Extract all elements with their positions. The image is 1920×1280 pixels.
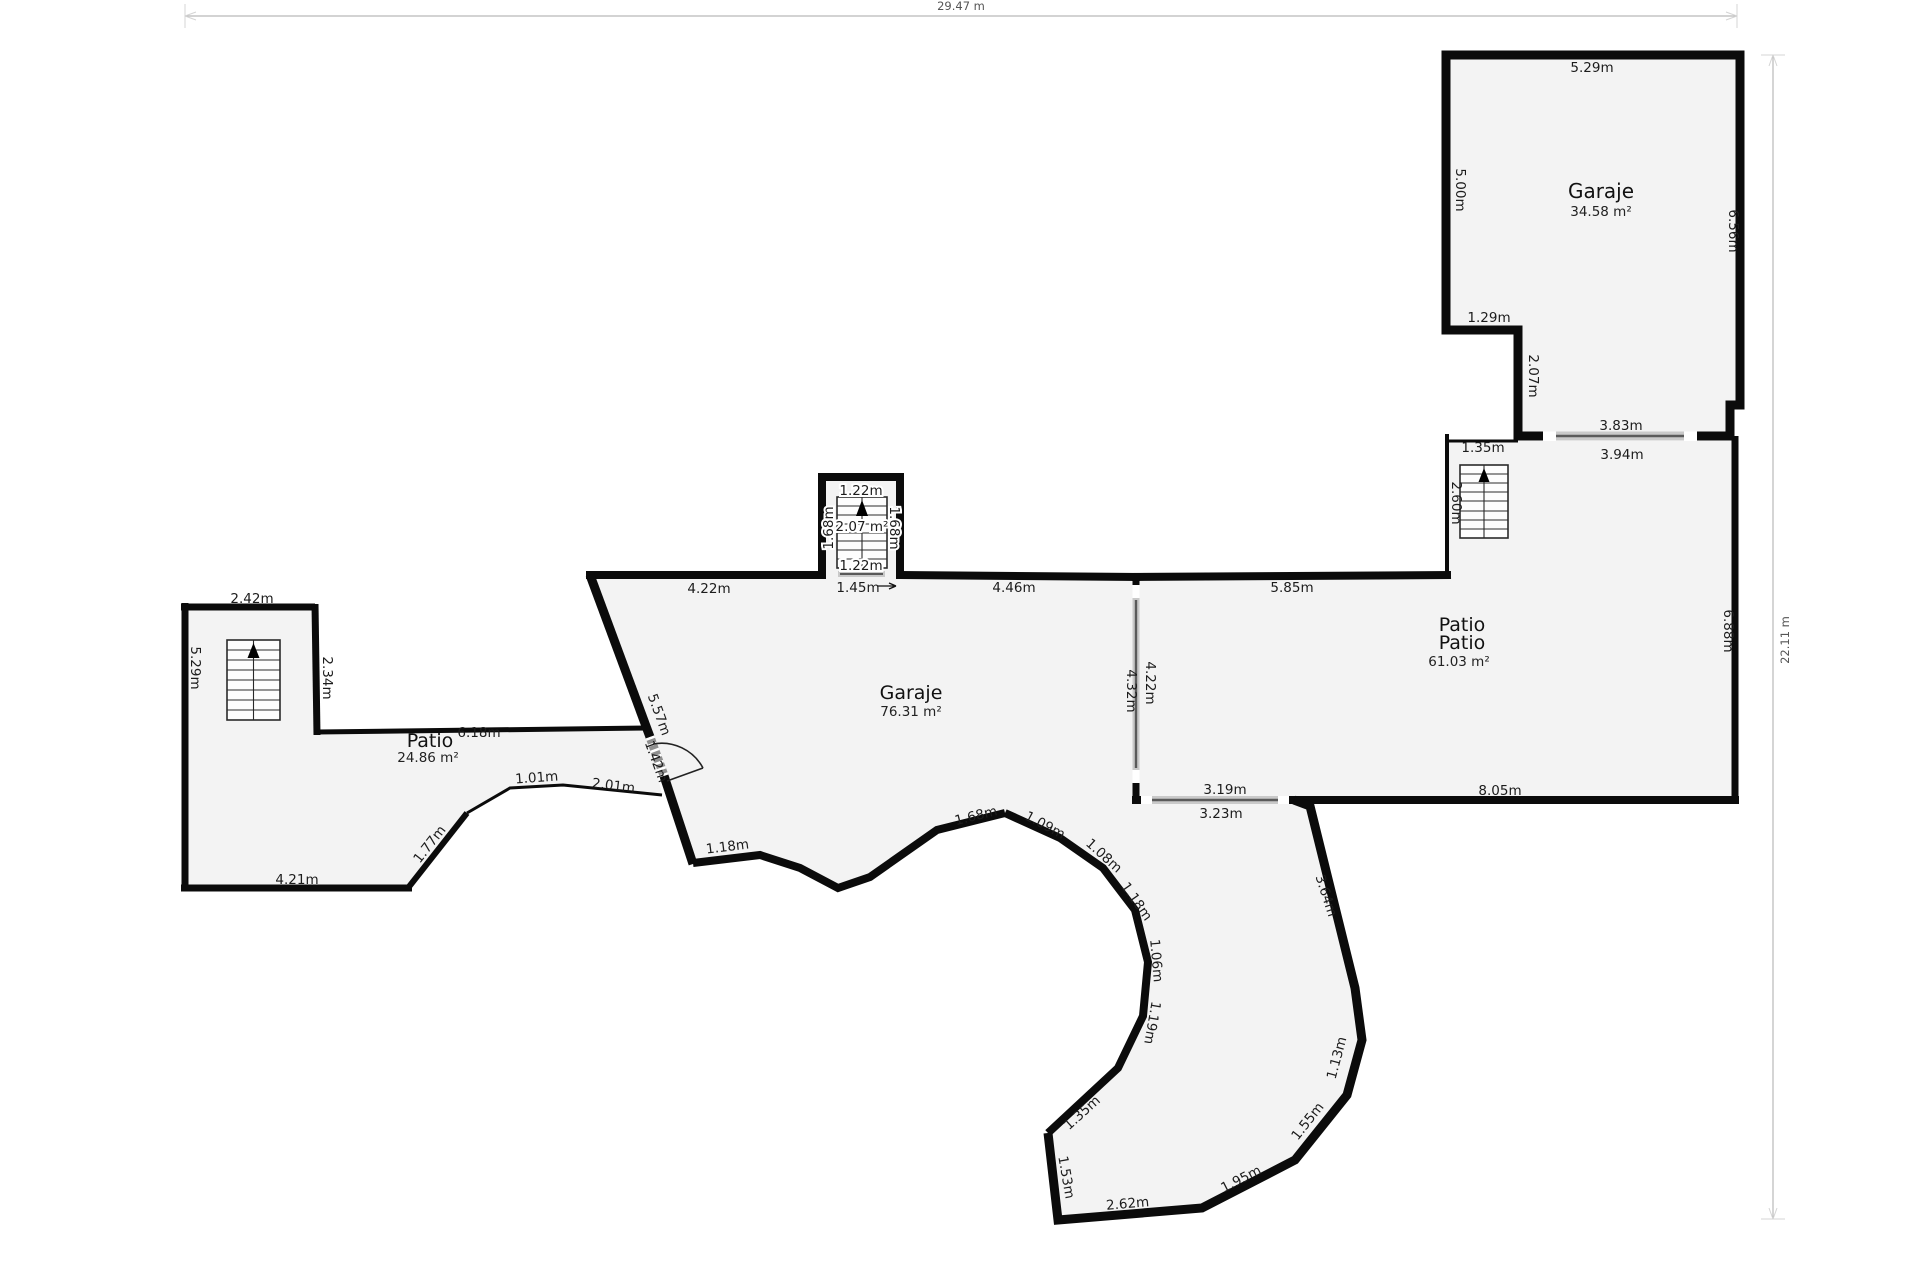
room-area: 76.31 m² — [880, 704, 942, 720]
dim-g1-notch-h: 2.07m — [1525, 354, 1541, 397]
dim-p2-divider-right: 4.22m — [1142, 661, 1158, 704]
dim-g1-left: 5.00m — [1452, 168, 1468, 211]
dim-p1-right: 2.34m — [319, 656, 335, 699]
dim-p2-stairs: 2.60m — [1448, 481, 1464, 524]
dim-g2-stair-bottom: 1.22m — [839, 558, 882, 574]
dim-p2-window-bottom-out: 3.19m — [1203, 782, 1246, 798]
room-label-patio-left: Patio 24.86 m² — [397, 730, 459, 766]
ruler-right-label: 22.11 m — [1778, 616, 1792, 664]
dim-p2-bottom: 8.05m — [1478, 783, 1521, 799]
dim-g1-window: 3.83m — [1599, 418, 1642, 434]
dim-p2-window-top: 3.94m — [1600, 447, 1643, 463]
dim-g2-stair-width: 1.45m — [836, 580, 879, 596]
dim-g1-notch-w: 1.29m — [1467, 310, 1510, 326]
floor-patio-right — [1136, 441, 1735, 800]
dim-p2-window-bottom-in: 3.23m — [1199, 806, 1242, 822]
dim-g2-top-right: 4.46m — [992, 580, 1035, 596]
room-area: 24.86 m² — [397, 750, 459, 766]
wall-garage-top-east — [900, 575, 1140, 577]
ruler-top: 29.47 m — [185, 0, 1737, 28]
room-label-garage-center: Garaje 76.31 m² — [880, 682, 943, 720]
ruler-right: 22.11 m — [1761, 55, 1792, 1219]
room-name: Garaje — [1568, 179, 1634, 203]
wall-patio-right-top — [1132, 575, 1451, 577]
dim-p1-left: 5.29m — [187, 646, 203, 689]
dim-p2-top: 5.85m — [1270, 580, 1313, 596]
dim-g2-stair-top: 1.22m — [839, 483, 882, 499]
dim-p2-offset: 1.35m — [1461, 440, 1504, 456]
dim-p2-divider-left: 4.32m — [1123, 669, 1139, 712]
dim-p1-corridor: 6.18m — [457, 725, 500, 741]
room-area: 34.58 m² — [1570, 204, 1632, 220]
dim-p2-right: 6.88m — [1720, 609, 1736, 652]
room-name-2: Patio — [1439, 632, 1486, 654]
floor-plan-page: 29.47 m 22.11 m — [0, 0, 1920, 1280]
dim-g1-top: 5.29m — [1570, 60, 1613, 76]
floor-plan-svg: 29.47 m 22.11 m — [0, 0, 1920, 1280]
room-name: Patio — [407, 730, 454, 752]
dim-p1-top: 2.42m — [230, 591, 273, 607]
dim-p1-bottom: 4.21m — [275, 872, 318, 888]
dim-g1-right: 6.56m — [1725, 209, 1741, 252]
room-name: Garaje — [880, 682, 943, 704]
staircase-left — [227, 640, 280, 720]
dim-g2-stair-area: 2.07 m² — [836, 519, 889, 535]
dim-g2-top-left: 4.22m — [687, 581, 730, 597]
floor-garage-top-right — [1446, 55, 1740, 436]
staircase-right — [1460, 465, 1508, 538]
wall-patio-left-east — [315, 604, 317, 735]
ruler-top-label: 29.47 m — [937, 0, 985, 13]
room-area: 61.03 m² — [1428, 654, 1490, 670]
room-label-garage-top-right: Garaje 34.58 m² — [1568, 179, 1634, 220]
dim-p1-edge1: 1.01m — [515, 769, 559, 788]
